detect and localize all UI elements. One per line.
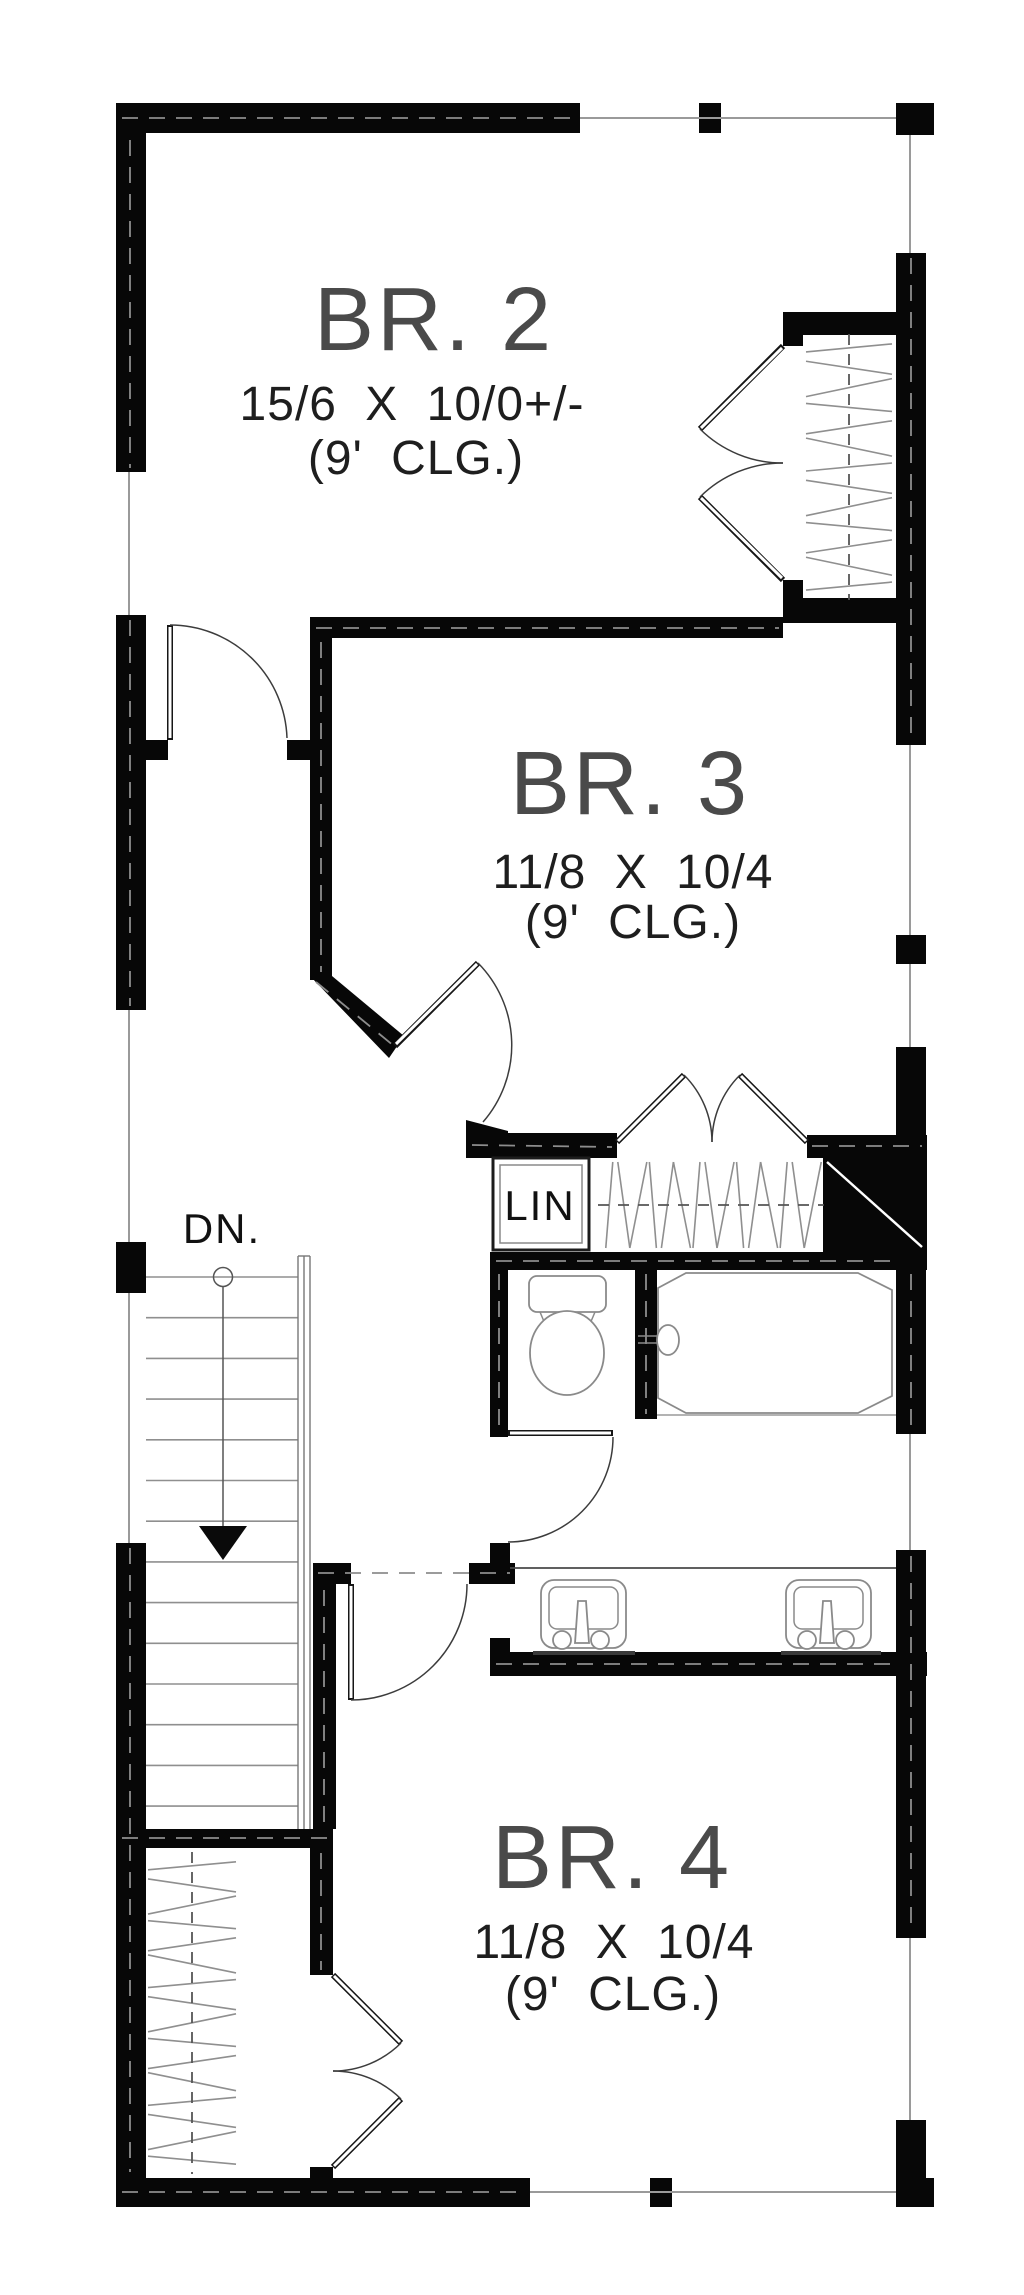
br2-door — [170, 625, 287, 740]
room-ceiling-br2: (9' CLG.) — [308, 432, 524, 485]
tub-faucet-icon — [657, 1325, 679, 1355]
room-ceiling-br3: (9' CLG.) — [525, 896, 741, 949]
br3-closet-rod — [598, 1162, 824, 1248]
br3-door — [395, 963, 512, 1122]
bathroom-door — [508, 1433, 613, 1542]
room-dims-br3: 11/8 X 10/4 — [493, 846, 774, 899]
floor-plan-drawing: BR. 2 15/6 X 10/0+/- (9' CLG.) BR. 3 11/… — [0, 0, 1024, 2295]
vanity — [510, 1568, 896, 1653]
br2-closet-doors — [700, 346, 783, 580]
room-ceiling-br4: (9' CLG.) — [505, 1968, 721, 2021]
br4-door — [351, 1584, 467, 1700]
linen-closet-label: LIN — [504, 1182, 575, 1229]
vanity-sink-right — [786, 1580, 871, 1649]
br3-closet-doors — [617, 1075, 807, 1142]
room-label-br4: BR. 4 — [492, 1808, 732, 1908]
br4-closet-rod — [148, 1852, 236, 2174]
br4-closet-doors — [333, 1975, 401, 2167]
room-label-br2: BR. 2 — [314, 270, 554, 370]
room-dims-br2: 15/6 X 10/0+/- — [240, 378, 585, 431]
sink-faucet-icon — [575, 1601, 589, 1643]
vanity-sink-left — [541, 1580, 626, 1649]
br2-closet-rod — [806, 334, 892, 600]
room-dims-br4: 11/8 X 10/4 — [474, 1916, 755, 1969]
stair-down-arrow-icon — [199, 1526, 247, 1560]
sink-faucet-icon — [820, 1601, 834, 1643]
floor-plan-page: BR. 2 15/6 X 10/0+/- (9' CLG.) BR. 3 11/… — [0, 0, 1024, 2295]
stairs — [146, 1256, 310, 1829]
room-label-br3: BR. 3 — [510, 734, 750, 834]
toilet — [529, 1276, 606, 1395]
stairs-down-label: DN. — [183, 1205, 261, 1252]
bathtub — [638, 1273, 896, 1415]
